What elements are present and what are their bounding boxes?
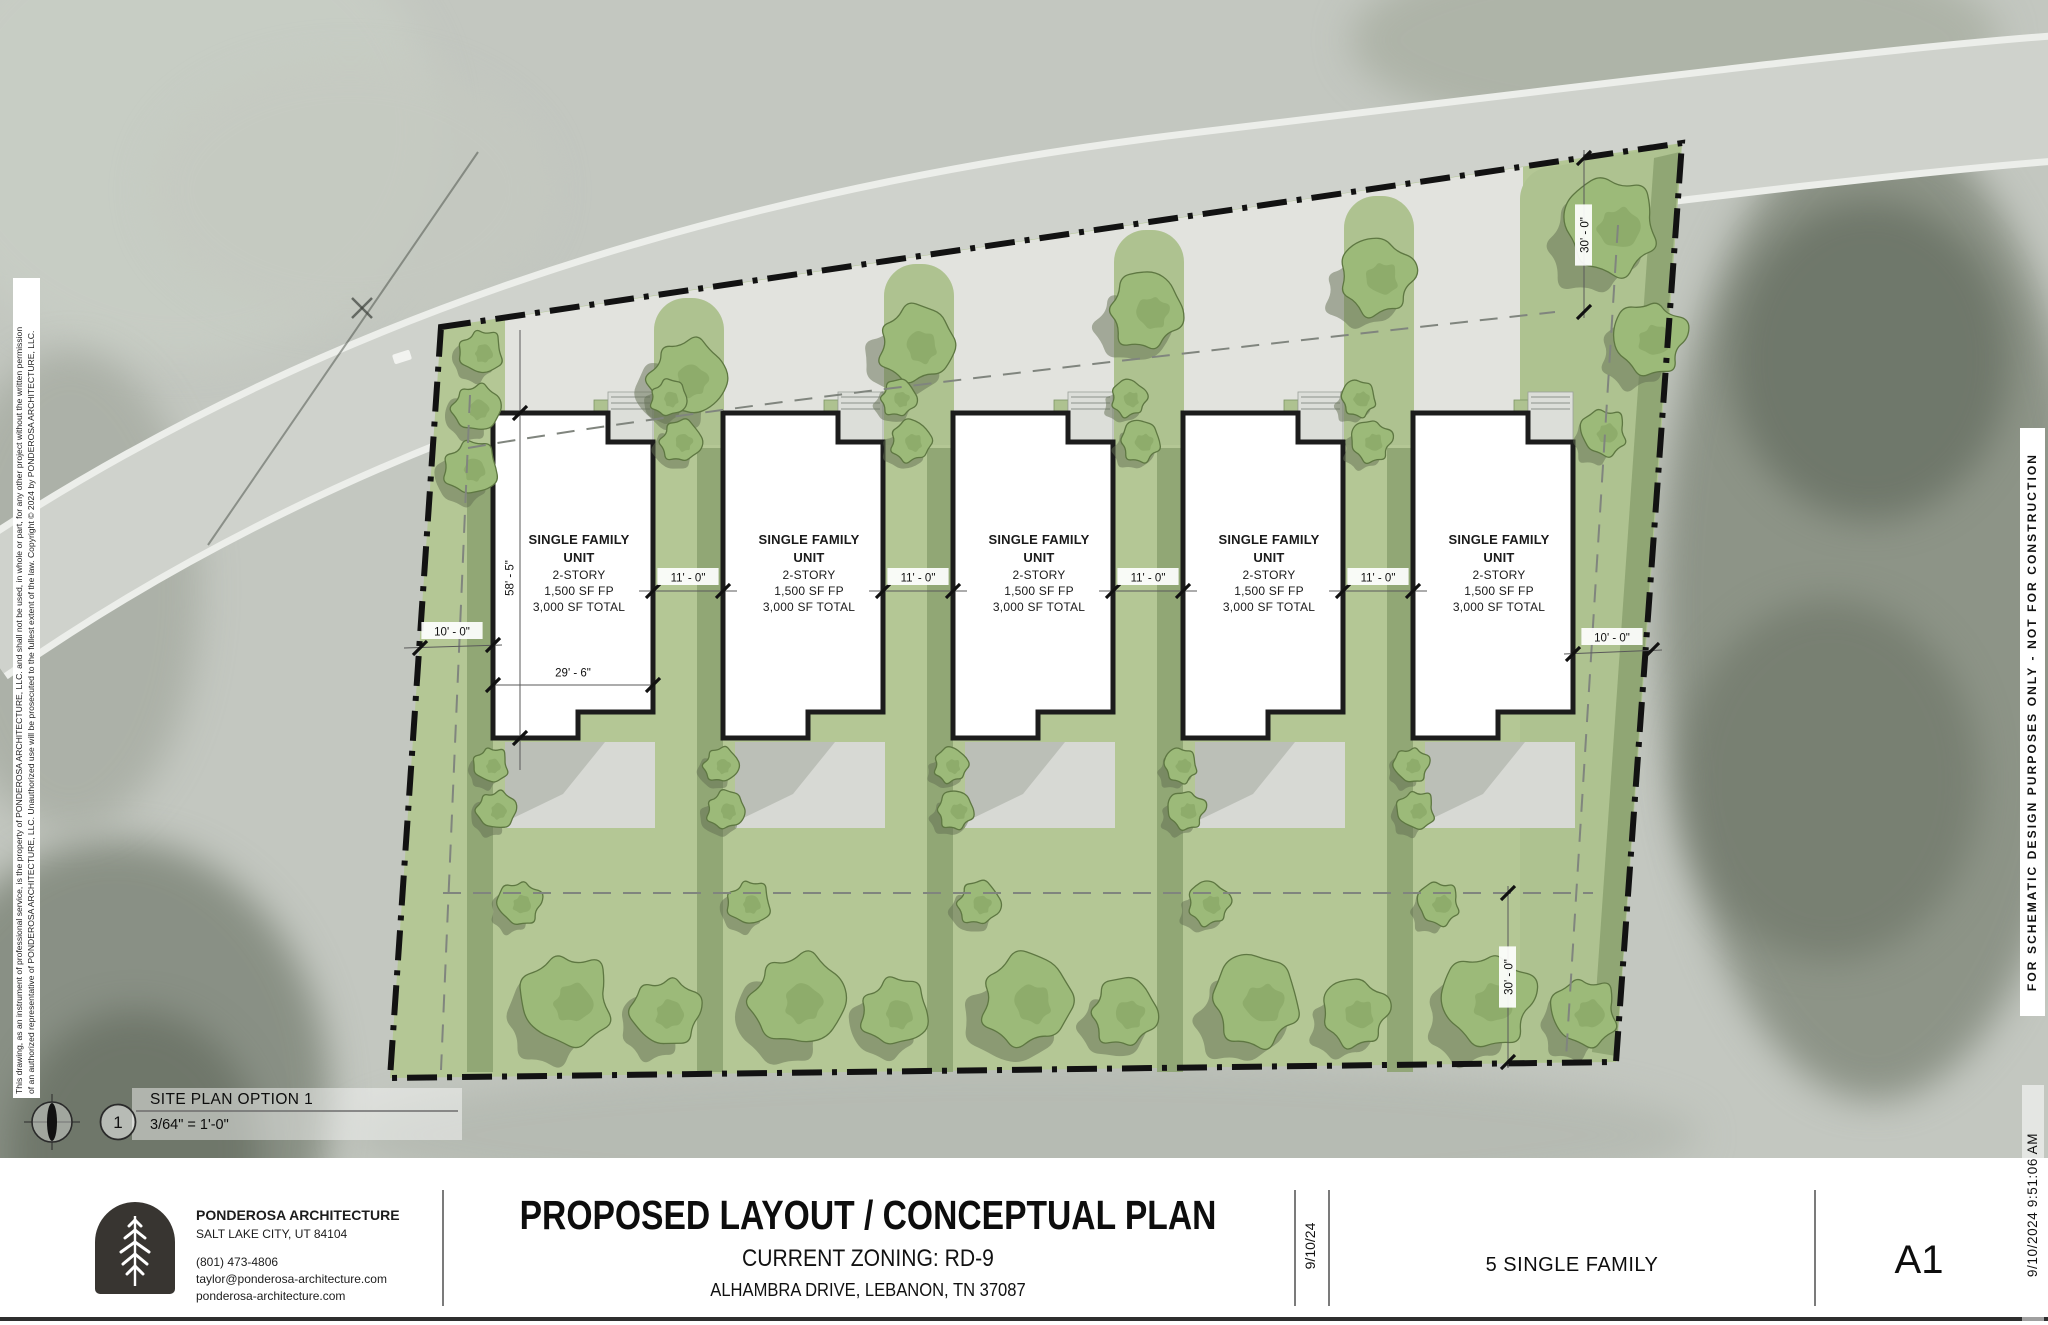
- unit-footprint: SINGLE FAMILYUNIT2-STORY1,500 SF FP3,000…: [1183, 413, 1343, 738]
- dimension-label-group: 10' - 0": [1581, 628, 1642, 645]
- sheet-title: PROPOSED LAYOUT / CONCEPTUAL PLAN: [519, 1192, 1218, 1239]
- ponderosa-logo: [95, 1202, 175, 1294]
- firm-city: SALT LAKE CITY, UT 84104: [196, 1226, 400, 1243]
- unit-footprint: SINGLE FAMILYUNIT2-STORY1,500 SF FP3,000…: [1413, 413, 1573, 738]
- unit-label: UNIT: [1253, 550, 1284, 565]
- dimension-label-group: 29' - 6": [542, 663, 603, 680]
- dimension-label-group: 58' - 5": [500, 547, 517, 608]
- unit-label: 3,000 SF TOTAL: [1223, 600, 1315, 614]
- firm-website: ponderosa-architecture.com: [196, 1288, 400, 1305]
- unit-label: SINGLE FAMILY: [528, 532, 629, 547]
- unit-label: 2-STORY: [1473, 568, 1526, 582]
- unit-label: 3,000 SF TOTAL: [1453, 600, 1545, 614]
- stoop-pad: [1298, 392, 1343, 442]
- stoop-pad: [1528, 392, 1573, 442]
- unit-label: 2-STORY: [1243, 568, 1296, 582]
- rear-patio: [1425, 742, 1575, 828]
- print-timestamp: 9/10/2024 9:51:06 AM: [2022, 1085, 2044, 1325]
- unit-label: SINGLE FAMILY: [758, 532, 859, 547]
- unit-label: 1,500 SF FP: [544, 584, 614, 598]
- pine-tree-icon: [95, 1202, 175, 1294]
- dimension-label: 58' - 5": [505, 560, 517, 596]
- unit-label: SINGLE FAMILY: [1218, 532, 1319, 547]
- detail-marker-1: 1: [101, 1105, 136, 1140]
- firm-phone: (801) 473-4806: [196, 1254, 400, 1271]
- utility-pole-icon: [352, 298, 372, 318]
- view-title: SITE PLAN OPTION 1: [150, 1091, 313, 1108]
- firm-email: taylor@ponderosa-architecture.com: [196, 1271, 400, 1288]
- titleblock-divider: [1294, 1190, 1296, 1306]
- unit-label: UNIT: [1483, 550, 1514, 565]
- unit-label: 2-STORY: [1013, 568, 1066, 582]
- dimension-label-group: 30' - 0": [1575, 204, 1592, 265]
- sheet-title-group: PROPOSED LAYOUT / CONCEPTUAL PLAN CURREN…: [442, 1158, 1294, 1325]
- unit-footprint: SINGLE FAMILYUNIT2-STORY1,500 SF FP3,000…: [723, 413, 883, 738]
- schematic-disclaimer: FOR SCHEMATIC DESIGN PURPOSES ONLY - NOT…: [2020, 428, 2045, 1016]
- dimension-label-group: 11' - 0": [657, 568, 718, 585]
- rear-patio: [505, 742, 655, 828]
- unit-footprint: SINGLE FAMILYUNIT2-STORY1,500 SF FP3,000…: [953, 413, 1113, 738]
- unit-label: UNIT: [1023, 550, 1054, 565]
- sheet-number: A1: [1814, 1238, 2024, 1283]
- rear-patio: [965, 742, 1115, 828]
- project-address: ALHAMBRA DRIVE, LEBANON, TN 37087: [476, 1280, 1260, 1301]
- unit-label: UNIT: [563, 550, 594, 565]
- north-arrow-icon: [24, 1094, 80, 1150]
- dimension-label-group: 11' - 0": [887, 568, 948, 585]
- view-number: 1: [113, 1113, 122, 1132]
- dimension-label: 10' - 0": [1594, 633, 1630, 645]
- unit-label: 3,000 SF TOTAL: [533, 600, 625, 614]
- firm-name: PONDEROSA ARCHITECTURE: [196, 1206, 400, 1226]
- dimension-label: 11' - 0": [901, 573, 936, 585]
- project-name: 5 SINGLE FAMILY: [1330, 1254, 1814, 1277]
- view-title-block: 1 SITE PLAN OPTION 1 3/64" = 1'-0": [24, 1088, 462, 1150]
- dimension-label: 11' - 0": [671, 573, 706, 585]
- stoop-pad: [838, 392, 883, 442]
- unit-label: SINGLE FAMILY: [988, 532, 1089, 547]
- unit-label: 2-STORY: [783, 568, 836, 582]
- unit-label: 1,500 SF FP: [1464, 584, 1534, 598]
- view-scale: 3/64" = 1'-0": [150, 1117, 229, 1133]
- dimension-label-group: 11' - 0": [1347, 568, 1408, 585]
- dimension-label: 10' - 0": [434, 627, 470, 639]
- unit-label: SINGLE FAMILY: [1448, 532, 1549, 547]
- sheet-date: 9/10/24: [1297, 1190, 1323, 1302]
- unit-label: 3,000 SF TOTAL: [763, 600, 855, 614]
- copyright-line1: This drawing, as an instrument of profes…: [13, 278, 25, 1094]
- unit-label: 3,000 SF TOTAL: [993, 600, 1085, 614]
- dimension-label: 29' - 6": [555, 668, 591, 680]
- dimension-label: 11' - 0": [1131, 573, 1166, 585]
- dimension-label: 30' - 0": [1580, 217, 1592, 253]
- unit-label: 1,500 SF FP: [774, 584, 844, 598]
- site-plan-drawing: SINGLE FAMILYUNIT2-STORY1,500 SF FP3,000…: [0, 0, 2048, 1325]
- sheet: SINGLE FAMILYUNIT2-STORY1,500 SF FP3,000…: [0, 0, 2048, 1325]
- unit-label: 1,500 SF FP: [1004, 584, 1074, 598]
- unit-label: 2-STORY: [553, 568, 606, 582]
- unit-label: 1,500 SF FP: [1234, 584, 1304, 598]
- dimension-label-group: 10' - 0": [421, 622, 482, 639]
- dimension-label-group: 30' - 0": [1499, 946, 1516, 1007]
- firm-info: PONDEROSA ARCHITECTURE SALT LAKE CITY, U…: [196, 1206, 400, 1305]
- dimension-label-group: 11' - 0": [1117, 568, 1178, 585]
- titleblock-divider: [1328, 1190, 1330, 1306]
- sheet-border: [0, 1317, 2048, 1321]
- rear-patio: [735, 742, 885, 828]
- copyright-notice: This drawing, as an instrument of profes…: [13, 278, 40, 1098]
- zoning-note: CURRENT ZONING: RD-9: [493, 1245, 1243, 1273]
- unit-label: UNIT: [793, 550, 824, 565]
- dimension-label: 11' - 0": [1361, 573, 1396, 585]
- dimension-label: 30' - 0": [1504, 959, 1516, 995]
- rear-patio: [1195, 742, 1345, 828]
- copyright-line2: of an authorized representative of PONDE…: [25, 278, 37, 1094]
- title-block: PONDEROSA ARCHITECTURE SALT LAKE CITY, U…: [0, 1158, 2048, 1325]
